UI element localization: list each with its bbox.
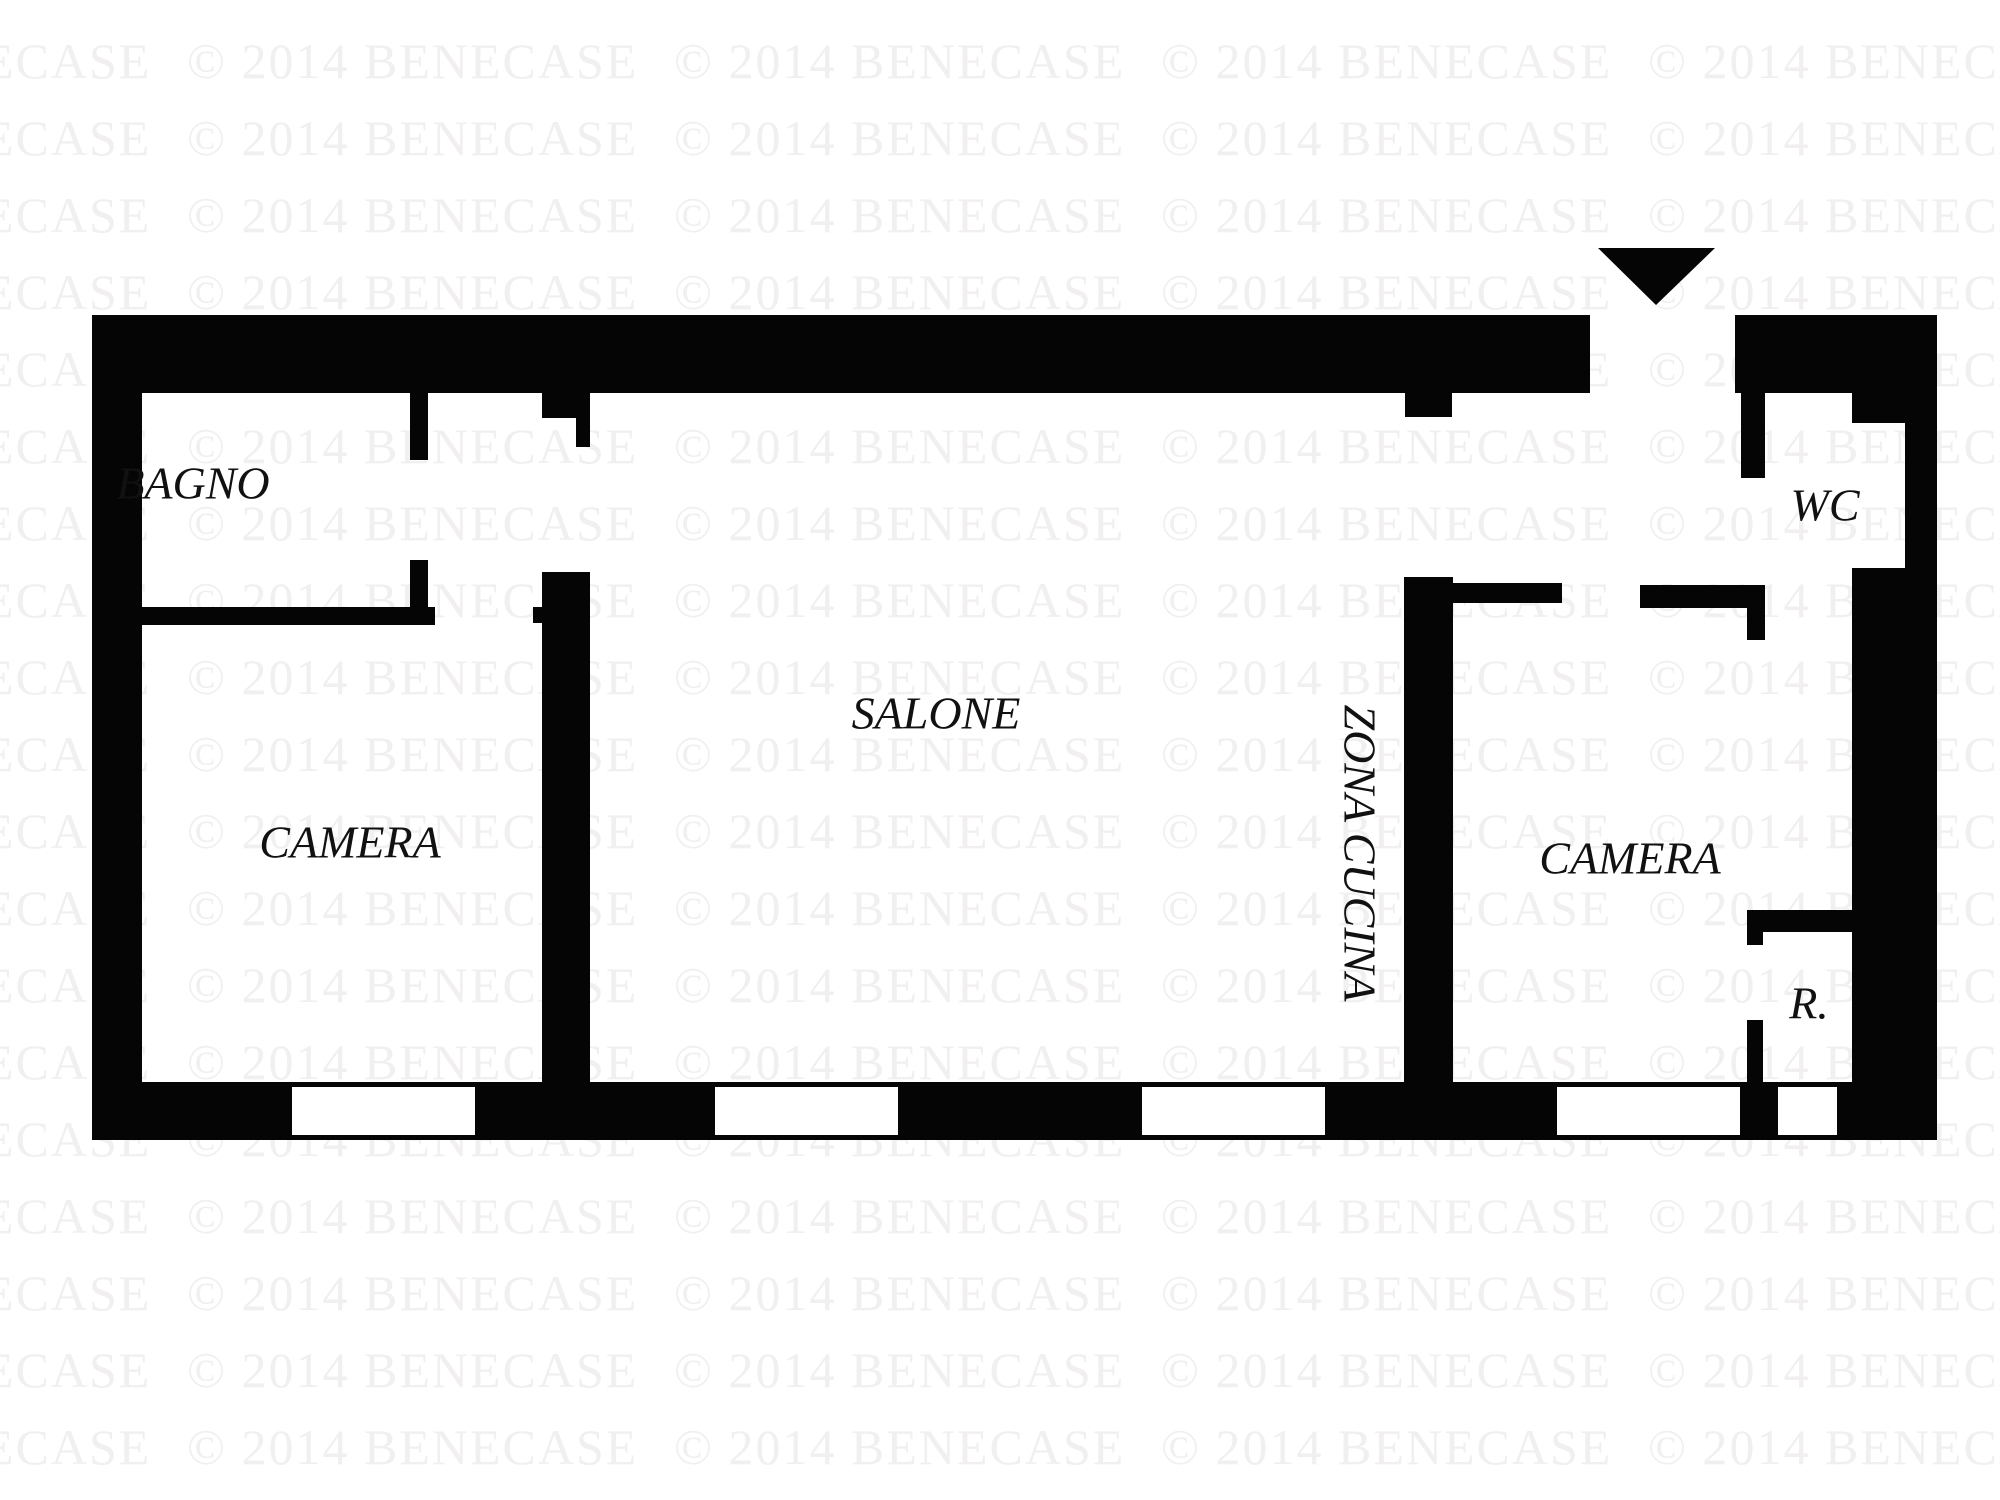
watermark-text: © 2014 BENECASE [674,1420,1125,1474]
window-salone-left [715,1087,898,1135]
watermark-text: © 2014 BENECASE [1648,188,2000,242]
watermark-text: © 2014 BENECASE [1161,1035,1612,1089]
watermark-text: © 2014 BENECASE [674,881,1125,935]
wall-camera-left-doorjamb [533,607,542,623]
wall-camera-right-top [1453,583,1562,603]
watermark-text: © 2014 BENECASE [1161,496,1612,550]
watermark-text: © 2014 BENECASE [1648,419,2000,473]
watermark-text: © 2014 BENECASE [674,496,1125,550]
wall-right-lower [1852,568,1937,1140]
watermark-text: © 2014 BENECASE [1648,34,2000,88]
window-camera-left [292,1087,475,1135]
watermark-text: © 2014 BENECASE [1161,1343,1612,1397]
watermark-text: © 2014 BENECASE [187,1343,638,1397]
watermark-text: © 2014 BENECASE [1648,1343,2000,1397]
watermark-text: © 2014 BENECASE [674,573,1125,627]
watermark-text: © 2014 BENECASE [1161,881,1612,935]
wall-ripostiglio-top [1747,910,1852,932]
wall-cucina-stub [1405,393,1452,417]
watermark-text: © 2014 BENECASE [674,265,1125,319]
watermark-text: © 2014 BENECASE [0,265,151,319]
watermark-text: © 2014 BENECASE [187,111,638,165]
wall-cucina-vertical [1404,577,1453,1082]
wall-bagno-bottom [142,607,435,625]
watermark-text: © 2014 BENECASE [1648,1189,2000,1243]
room-label-ripostiglio: R. [1789,977,1829,1030]
watermark-text: © 2014 BENECASE [674,804,1125,858]
room-label-camera-left: CAMERA [259,816,440,869]
watermark-text: © 2014 BENECASE [674,958,1125,1012]
wall-bagno-right-upper [410,393,428,460]
wall-ripostiglio-left [1747,1020,1763,1082]
watermark-text: © 2014 BENECASE [674,1266,1125,1320]
watermark-text: © 2014 BENECASE [1648,1266,2000,1320]
watermark-text: © 2014 BENECASE [1648,650,2000,704]
watermark-text: © 2014 BENECASE [187,1189,638,1243]
window-camera-right [1557,1087,1740,1135]
room-label-zona-cucina: ZONA CUCINA [1334,705,1387,1002]
watermark-text: © 2014 BENECASE [0,1266,151,1320]
wall-wc-left-tab [1747,608,1765,640]
wall-top-wc [1735,315,1937,393]
window-salone-right [1142,1087,1325,1135]
watermark-text: © 2014 BENECASE [187,1266,638,1320]
watermark-text: © 2014 BENECASE [0,188,151,242]
watermark-text: © 2014 BENECASE [1161,111,1612,165]
watermark-text: © 2014 BENECASE [1648,111,2000,165]
entrance-arrow-icon [1598,248,1715,305]
watermark-text: © 2014 BENECASE [674,1343,1125,1397]
watermark-text: © 2014 BENECASE [1161,650,1612,704]
wall-ripostiglio-top-tab [1747,932,1763,945]
watermark-text: © 2014 BENECASE [674,188,1125,242]
watermark-text: © 2014 BENECASE [0,1420,151,1474]
watermark-text: © 2014 BENECASE [0,1343,151,1397]
watermark-text: © 2014 BENECASE [1161,958,1612,1012]
wall-divider-main [542,572,590,1082]
room-label-salone: SALONE [852,687,1021,740]
watermark-text: © 2014 BENECASE [674,1189,1125,1243]
floor-plan-image: © 2014 BENECASE© 2014 BENECASE© 2014 BEN… [0,0,2000,1500]
window-ripostiglio [1778,1087,1837,1135]
watermark-text: © 2014 BENECASE [674,1035,1125,1089]
watermark-text: © 2014 BENECASE [0,111,151,165]
wall-divider-top-tab [576,418,590,447]
watermark-text: © 2014 BENECASE [1648,727,2000,781]
wall-right-step [1852,393,1937,423]
watermark-text: © 2014 BENECASE [0,1189,151,1243]
watermark-text: © 2014 BENECASE [1161,419,1612,473]
wall-wc-left [1741,393,1765,478]
room-label-wc: WC [1791,479,1860,532]
wall-right-narrow [1905,423,1937,568]
watermark-text: © 2014 BENECASE [0,34,151,88]
watermark-text: © 2014 BENECASE [1161,265,1612,319]
wall-corridor-bottom [1640,585,1765,608]
room-label-camera-right: CAMERA [1539,832,1720,885]
watermark-text: © 2014 BENECASE [187,1420,638,1474]
watermark-text: © 2014 BENECASE [1161,34,1612,88]
room-label-bagno: BAGNO [116,457,269,510]
wall-top-main [92,315,1590,393]
watermark-text: © 2014 BENECASE [1161,1266,1612,1320]
watermark-text: © 2014 BENECASE [1648,1035,2000,1089]
watermark-text: © 2014 BENECASE [187,34,638,88]
watermark-text: © 2014 BENECASE [1161,188,1612,242]
wall-left [92,315,142,1140]
watermark-text: © 2014 BENECASE [674,111,1125,165]
watermark-text: © 2014 BENECASE [674,419,1125,473]
watermark-layer: © 2014 BENECASE© 2014 BENECASE© 2014 BEN… [0,0,2000,1500]
watermark-text: © 2014 BENECASE [674,34,1125,88]
wall-divider-top [542,393,590,418]
watermark-text: © 2014 BENECASE [1161,727,1612,781]
watermark-text: © 2014 BENECASE [1161,1420,1612,1474]
watermark-text: © 2014 BENECASE [187,188,638,242]
watermark-text: © 2014 BENECASE [1161,1189,1612,1243]
watermark-text: © 2014 BENECASE [1648,1420,2000,1474]
watermark-text: © 2014 BENECASE [187,265,638,319]
